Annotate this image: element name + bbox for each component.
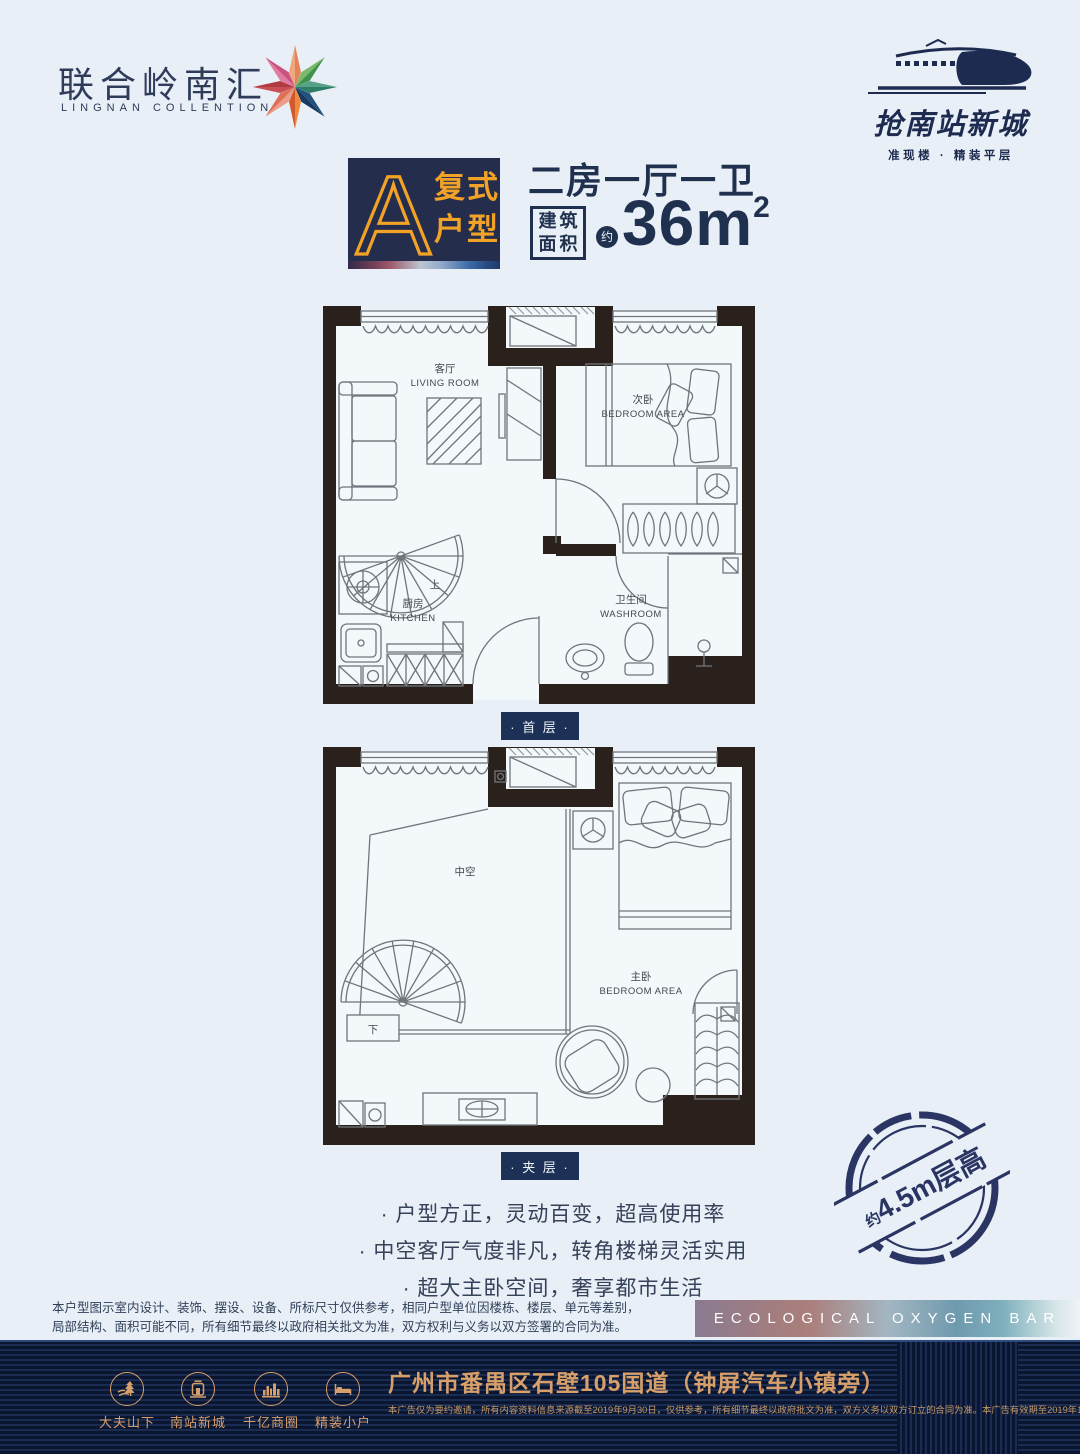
floorplan-first: 客厅 LIVING ROOM 次卧 BEDROOM AREA 厨房 KITCHE… (323, 306, 755, 709)
area-value: 36m2 (622, 186, 771, 260)
label-stair-up: 上 (430, 579, 441, 591)
floorplan-mezzanine: 下 中空 主卧 BEDROOM AREA (323, 747, 755, 1150)
footer-item-mountain: 大夫山下 (110, 1372, 144, 1406)
label-bedroom2-cn: 次卧 (633, 393, 654, 406)
area-label-box: 建筑 面积 (530, 206, 586, 260)
type-label-line2: 户型 (434, 209, 500, 251)
label-void: 中空 (455, 865, 476, 878)
label-master-cn: 主卧 (631, 970, 652, 983)
footer: 大夫山下 南站新城 千亿商圈 (0, 1340, 1080, 1454)
label-kitchen-cn: 厨房 (403, 597, 424, 610)
label-bedroom2-en: BEDROOM AREA (601, 409, 684, 420)
footer-legal: 本广告仅为要约邀请，所有内容资料信息来源截至2019年9月30日，仅供参考，所有… (388, 1402, 1080, 1416)
label-washroom-cn: 卫生间 (615, 593, 647, 606)
disclaimer: 本户型图示室内设计、装饰、摆设、设备、所标尺寸仅供参考，相同户型单位因楼栋、楼层… (52, 1299, 640, 1337)
eco-bar: ECOLOGICAL OXYGEN BAR (695, 1300, 1080, 1337)
campaign-subtitle: 准现楼 · 精装平层 (858, 147, 1044, 163)
poster-page: 联合岭南汇 LINGNAN COLLENTION 抢南站新城 准现楼 · 精装平… (0, 0, 1080, 1454)
mountain-tree-icon (117, 1379, 137, 1399)
train-icon (866, 36, 1036, 94)
campaign-title: 抢南站新城 (858, 101, 1044, 143)
type-letter: A (356, 158, 431, 261)
area-label-line1: 建筑 (536, 210, 581, 233)
feature-item: · 中空客厅气度非凡，转角楼梯灵活实用 (153, 1233, 953, 1270)
floor-badge-mezzanine: · 夹 层 · (501, 1152, 579, 1180)
label-stair-down: 下 (368, 1024, 379, 1036)
brand-logo-cn: 联合岭南汇 (58, 56, 268, 108)
area-superscript: 2 (753, 191, 771, 224)
skyline-icon (261, 1379, 281, 1399)
gradient-strip (348, 261, 500, 269)
station-icon (188, 1379, 208, 1399)
height-stamp: 约4.5m层高 (834, 1100, 1010, 1281)
footer-item-bed: 精装小户 (326, 1372, 360, 1406)
campaign-logo: 抢南站新城 准现楼 · 精装平层 (858, 36, 1044, 163)
label-living-en: LIVING ROOM (411, 378, 480, 389)
approx-circle: 约 (596, 226, 618, 248)
footer-item-station: 南站新城 (181, 1372, 215, 1406)
footer-vertical-stripes (897, 1342, 1018, 1454)
feature-list: · 户型方正，灵动百变，超高使用率 · 中空客厅气度非凡，转角楼梯灵活实用 · … (153, 1196, 953, 1307)
label-living-cn: 客厅 (435, 362, 456, 375)
footer-item-skyline: 千亿商圈 (254, 1372, 288, 1406)
project-address: 广州市番禺区石壁105国道（钟屏汽车小镇旁） (388, 1364, 885, 1398)
unit-type-badge: A 复式 户型 (348, 158, 500, 261)
area-label-line2: 面积 (536, 233, 581, 256)
floor-badge-first: · 首 层 · (501, 712, 579, 740)
brand-logo-en: LINGNAN COLLENTION (61, 102, 273, 114)
pinwheel-logo-icon (250, 42, 340, 137)
type-label-line1: 复式 (434, 167, 500, 209)
bed-icon (333, 1379, 353, 1399)
label-washroom-en: WASHROOM (600, 609, 662, 620)
label-master-en: BEDROOM AREA (599, 986, 682, 997)
feature-item: · 户型方正，灵动百变，超高使用率 (153, 1196, 953, 1233)
label-kitchen-en: KITCHEN (390, 613, 435, 624)
